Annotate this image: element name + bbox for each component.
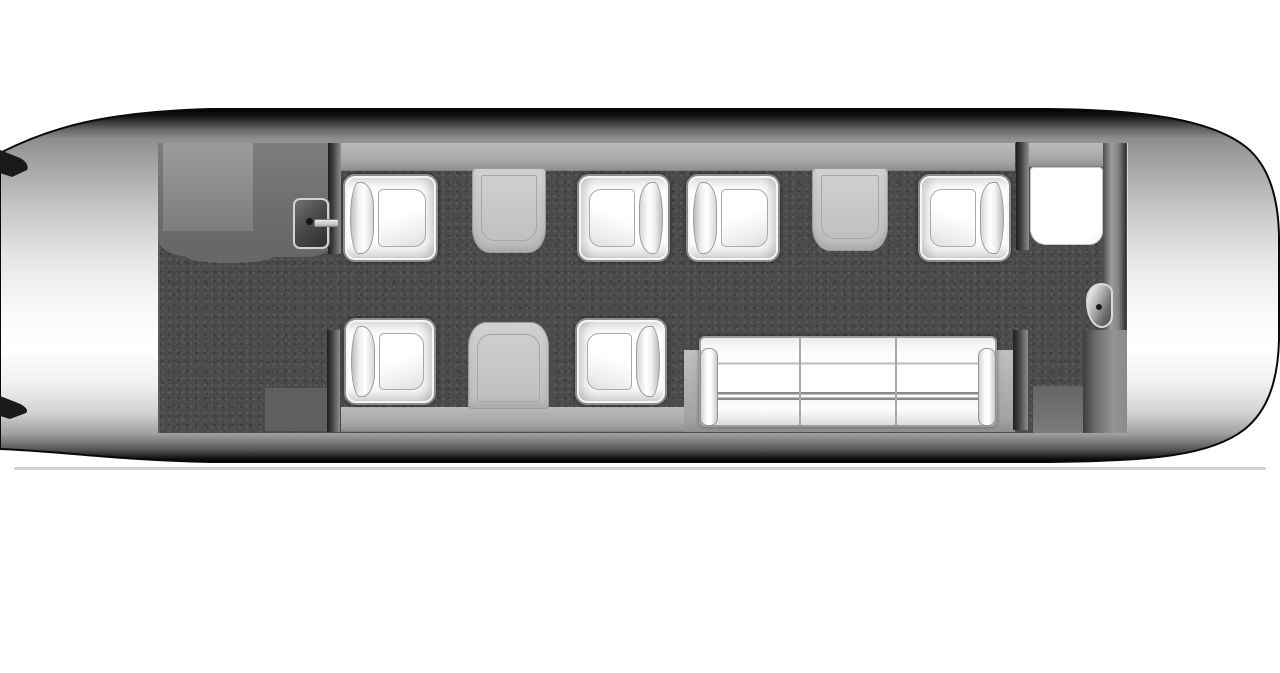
club-seat-4 — [918, 174, 1011, 262]
galley-counter-panel — [163, 143, 253, 231]
aft-partition-bottom — [1013, 330, 1028, 430]
aft-closet — [1083, 330, 1127, 433]
forward-partition-top — [328, 143, 341, 254]
club-seat-3 — [686, 174, 780, 262]
club-seat-2 — [577, 174, 670, 262]
three-seat-divan — [699, 336, 997, 427]
aft-partition-top — [1016, 142, 1029, 250]
aft-floor-pad — [1033, 386, 1084, 433]
club-seat-1 — [343, 174, 438, 262]
table-mid-club — [812, 168, 888, 251]
club-seat-6 — [575, 318, 667, 405]
aft-cabinet — [1030, 167, 1103, 245]
cabin-items — [0, 0, 1280, 673]
floorplan-stage — [0, 0, 1280, 673]
forward-partition-bottom — [327, 330, 340, 432]
club-seat-5 — [344, 318, 436, 405]
sidewall-ledge-top — [341, 143, 1015, 171]
sidewall-ledge-top-aft — [1029, 143, 1105, 167]
galley-monitor-panel — [293, 198, 329, 249]
table-forward-club — [472, 168, 546, 253]
entry-floor-pad — [265, 388, 328, 431]
table-lower-club — [468, 322, 549, 409]
sidewall-ledge-bottom — [341, 407, 691, 432]
